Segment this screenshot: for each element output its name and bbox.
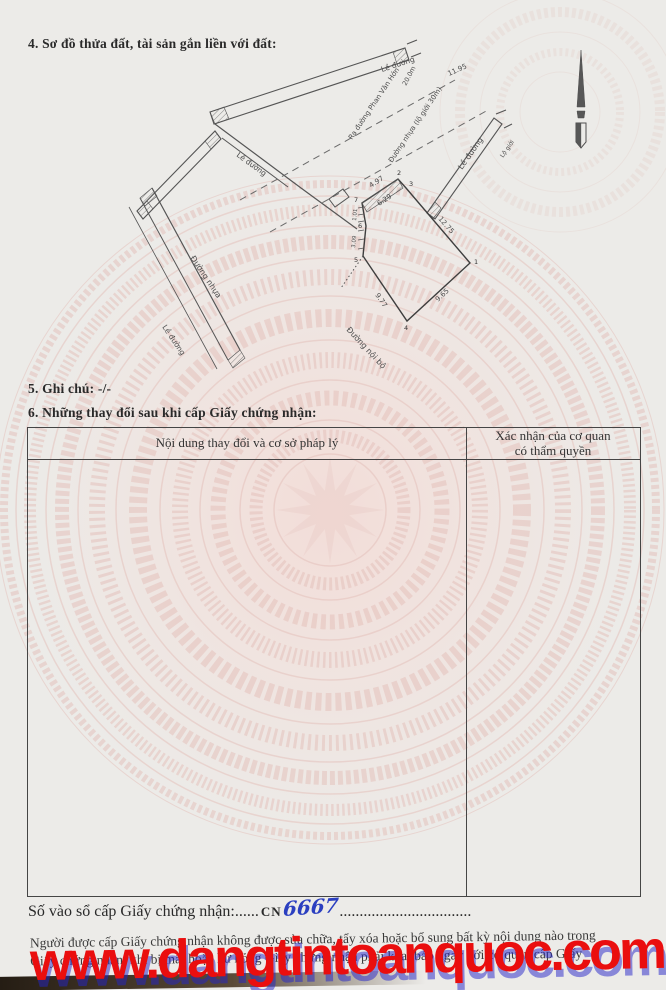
label-corner-strip: Lề đường bbox=[235, 150, 269, 178]
registry-prefix: CN bbox=[261, 904, 282, 919]
parcel-diagram: Lề đường 20.0m 11.95 Lề đường Ra đường P… bbox=[0, 0, 666, 400]
vertex-7: 7 bbox=[354, 196, 358, 204]
label-center-road-2: Đường nhựa (lộ giới 30m) bbox=[387, 85, 444, 164]
label-left-road: Đường nhựa bbox=[188, 254, 225, 301]
vertex-1: 1 bbox=[474, 258, 478, 266]
label-internal-road: Đường nội bộ bbox=[345, 325, 389, 371]
annex-square bbox=[329, 189, 349, 207]
table-header-row: Nội dung thay đổi và cơ sở pháp lý Xác n… bbox=[28, 428, 640, 460]
registry-label: Số vào sổ cấp Giấy chứng nhận: bbox=[28, 903, 235, 920]
registry-dots-1: ...... bbox=[235, 903, 259, 920]
changes-table: Nội dung thay đổi và cơ sở pháp lý Xác n… bbox=[27, 427, 641, 897]
section6-heading: 6. Những thay đổi sau khi cấp Giấy chứng… bbox=[28, 405, 317, 421]
dim-front: 4.97 bbox=[368, 174, 385, 189]
vertex-2: 2 bbox=[397, 169, 401, 177]
registry-line: Số vào sổ cấp Giấy chứng nhận:......CN66… bbox=[28, 897, 471, 921]
certificate-page: 4. Sơ đồ thửa đất, tài sản gắn liền với … bbox=[0, 0, 666, 990]
registry-number-handwritten: 6667 bbox=[282, 893, 339, 921]
label-lower-left-strip: Lề đường bbox=[160, 323, 187, 357]
vertex-5: 5 bbox=[354, 256, 358, 264]
dim-right-upper: 12.75 bbox=[436, 215, 455, 235]
table-header-confirmation-line1: Xác nhận của cơ quan bbox=[495, 429, 610, 443]
dim-bottom-left: 9.77 bbox=[373, 292, 388, 309]
registry-dots-2: ................................. bbox=[339, 903, 471, 920]
diagram-road-labels: Lề đường 20.0m 11.95 Lề đường Ra đường P… bbox=[160, 55, 516, 371]
vertex-4: 4 bbox=[404, 324, 408, 332]
road-corner-lines bbox=[215, 124, 357, 229]
section5-heading: 5. Ghi chú: -/- bbox=[28, 381, 111, 397]
parcel-polygon bbox=[341, 179, 470, 321]
dim-left-mid: 3.09 bbox=[351, 235, 358, 248]
label-road-width: 20.0m bbox=[401, 65, 418, 87]
label-right-strip: Lề đường bbox=[455, 135, 484, 171]
vertex-3: 3 bbox=[409, 180, 413, 188]
table-header-content: Nội dung thay đổi và cơ sở pháp lý bbox=[28, 428, 466, 459]
dim-left-small: 1.01 bbox=[352, 208, 359, 221]
north-arrow-icon bbox=[576, 50, 586, 148]
upper-left-strip bbox=[137, 131, 221, 219]
right-road-strip bbox=[427, 110, 512, 219]
table-header-confirmation: Xác nhận của cơ quan có thẩm quyền bbox=[466, 428, 640, 459]
label-right-note: Lộ giới bbox=[499, 139, 516, 159]
dim-right-lower: 9.65 bbox=[434, 287, 451, 303]
vertex-6: 6 bbox=[358, 222, 362, 230]
table-column-divider bbox=[466, 428, 467, 896]
url-watermark: www.dangtintoanquoc.com bbox=[29, 919, 664, 990]
table-header-confirmation-line2: có thẩm quyền bbox=[515, 444, 592, 458]
label-road-length: 11.95 bbox=[447, 62, 469, 77]
